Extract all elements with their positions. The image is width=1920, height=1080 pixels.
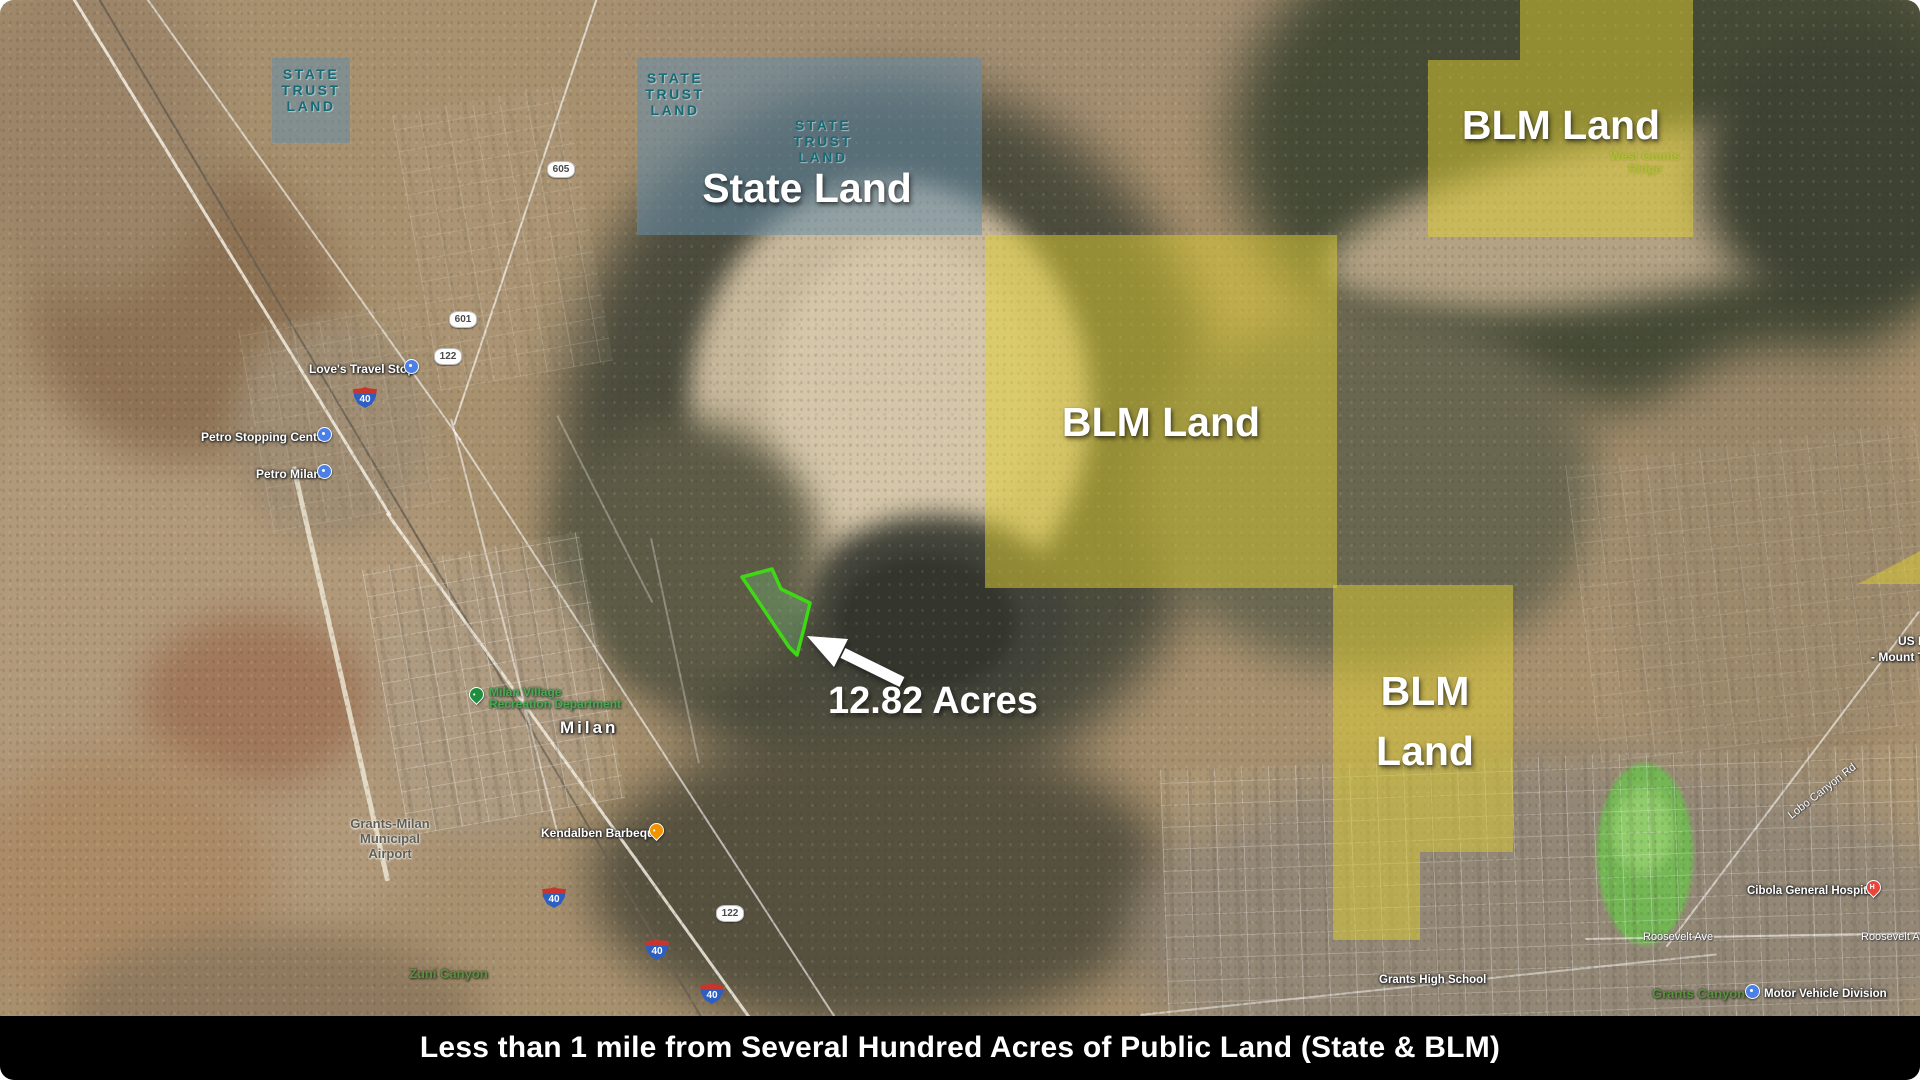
parcel-outline [742,569,810,655]
caption-bar: Less than 1 mile from Several Hundred Ac… [0,1016,1920,1080]
parcel-acreage-label: 12.82 Acres [828,680,1038,723]
caption-text: Less than 1 mile from Several Hundred Ac… [420,1031,1500,1065]
listing-map-graphic: Love's Travel Stop Petro Stopping Center… [0,0,1920,1080]
parcel-annotation-layer [0,0,1920,1080]
pointer-arrow [807,636,902,682]
